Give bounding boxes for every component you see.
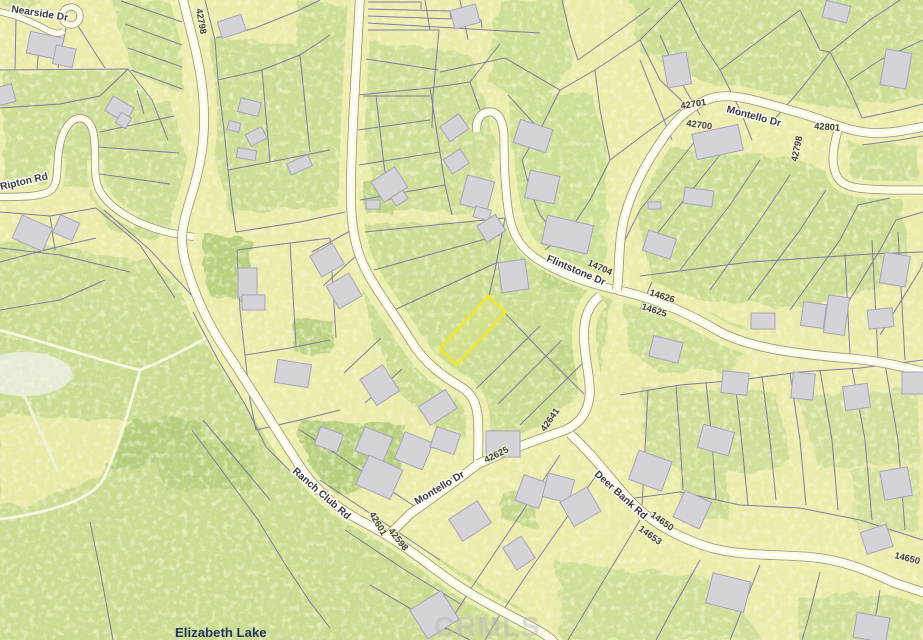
svg-text:Elizabeth Lake: Elizabeth Lake: [175, 625, 267, 640]
svg-text:42801: 42801: [814, 121, 840, 133]
svg-text:CRMLS: CRMLS: [434, 611, 541, 640]
